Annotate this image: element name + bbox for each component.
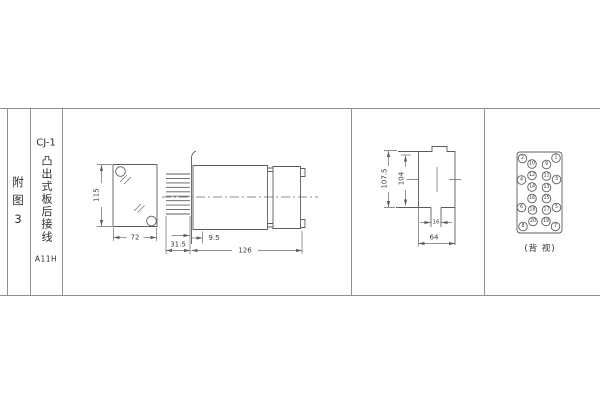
terminal-number-20: 20 [530, 218, 536, 224]
terminal-number-14: 14 [529, 184, 535, 190]
dim-16: 16 [432, 220, 440, 226]
center-mark [407, 167, 461, 192]
terminal-number-2: 2 [521, 155, 524, 161]
profile-view [384, 147, 461, 247]
side-view [162, 151, 318, 254]
terminal-pins [166, 174, 190, 214]
dim-104: 104 [398, 171, 406, 185]
terminal-number-6: 6 [520, 204, 523, 210]
terminal-number-9: 9 [545, 161, 548, 167]
terminal-number-7: 7 [554, 223, 557, 229]
terminal-number-1: 1 [554, 155, 557, 161]
dim-115: 115 [93, 188, 101, 201]
code-label: A11H [35, 255, 57, 264]
dim-9-5: 9.5 [208, 234, 219, 242]
mounting-hole-top [116, 167, 126, 177]
back-view: 2468101214161820911131517191357 [517, 152, 562, 233]
mounting-hole-bottom [147, 216, 157, 226]
terminal-number-11: 11 [543, 173, 549, 179]
relay-body [193, 166, 268, 230]
terminal-number-16: 16 [529, 195, 535, 201]
dim-126: 126 [238, 247, 252, 255]
technical-drawing: 2468101214161820911131517191357 115 72 3… [0, 0, 600, 400]
model-label: CJ-1 [36, 138, 56, 149]
profile-outline [398, 147, 455, 246]
drawing-title: 凸出式板后接线 [38, 155, 54, 243]
terminal-number-8: 8 [521, 223, 524, 229]
table-grid [0, 108, 600, 296]
figure-number-label: 附图3 [10, 176, 26, 233]
rear-block [273, 167, 301, 229]
back-view-caption: (背 视) [524, 242, 555, 254]
terminal-number-5: 5 [555, 204, 558, 210]
dim-64: 64 [430, 234, 439, 242]
terminal-number-19: 19 [543, 218, 549, 224]
dim-31-5: 31.5 [170, 241, 186, 249]
panel-line [191, 151, 196, 244]
hatch-marks [120, 175, 145, 213]
terminal-number-15: 15 [543, 195, 549, 201]
dim-107-5: 107.5 [381, 168, 389, 188]
front-view [97, 165, 157, 242]
terminal-number-13: 13 [543, 184, 549, 190]
terminal-number-4: 4 [520, 177, 523, 183]
terminal-number-18: 18 [529, 207, 535, 213]
terminal-number-10: 10 [529, 161, 535, 167]
terminal-number-12: 12 [529, 172, 535, 178]
drawing-sheet: 2468101214161820911131517191357 115 72 3… [0, 0, 600, 400]
terminal-number-3: 3 [555, 176, 558, 182]
socket-outline [517, 152, 562, 233]
terminal-group: 2468101214161820911131517191357 [517, 154, 561, 231]
rear-tabs [301, 169, 306, 228]
dim-72: 72 [131, 234, 140, 242]
terminal-number-17: 17 [543, 207, 549, 213]
